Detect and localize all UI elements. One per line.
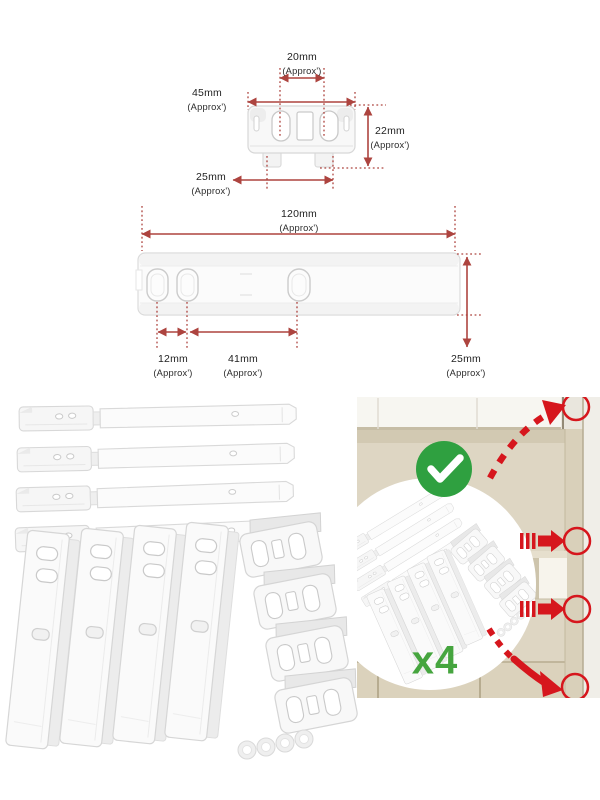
dim-label-rail-height: 25mm (Approx') bbox=[446, 353, 485, 379]
dim-label-clip-width: 45mm (Approx') bbox=[187, 87, 226, 113]
cabinet-side-edge bbox=[565, 397, 600, 698]
dim-label-clip-tab-spacing: 25mm (Approx') bbox=[191, 171, 230, 197]
dim-approx: (Approx') bbox=[153, 367, 192, 379]
dim-value: 41mm bbox=[223, 353, 262, 367]
dim-approx: (Approx') bbox=[282, 65, 321, 77]
check-icon bbox=[416, 441, 472, 497]
rail-part-drawing bbox=[136, 253, 460, 315]
dim-approx: (Approx') bbox=[223, 367, 262, 379]
clip-part-drawing bbox=[248, 106, 355, 167]
dim-value: 22mm bbox=[370, 125, 409, 139]
dim-approx: (Approx') bbox=[187, 101, 226, 113]
cabinet-recess bbox=[531, 551, 567, 599]
diagram-artwork bbox=[0, 0, 600, 800]
dim-approx: (Approx') bbox=[191, 185, 230, 197]
kit-contents-drawing bbox=[5, 403, 367, 759]
dim-label-rail-length: 120mm (Approx') bbox=[279, 208, 318, 234]
dim-label-rail-peg-gap-small: 12mm (Approx') bbox=[153, 353, 192, 379]
dim-approx: (Approx') bbox=[279, 222, 318, 234]
installation-panel-drawing bbox=[324, 394, 600, 700]
dim-label-clip-height: 22mm (Approx') bbox=[370, 125, 409, 151]
quantity-label: x4 bbox=[412, 639, 459, 684]
dim-value: 120mm bbox=[279, 208, 318, 222]
dim-approx: (Approx') bbox=[370, 139, 409, 151]
dim-value: 45mm bbox=[187, 87, 226, 101]
dim-value: 25mm bbox=[446, 353, 485, 367]
dim-label-clip-slot-spacing: 20mm (Approx') bbox=[282, 51, 321, 77]
product-image: 20mm (Approx') 45mm (Approx') 22mm (Appr… bbox=[0, 0, 600, 800]
dim-value: 20mm bbox=[282, 51, 321, 65]
dim-value: 12mm bbox=[153, 353, 192, 367]
dim-approx: (Approx') bbox=[446, 367, 485, 379]
dim-value: 25mm bbox=[191, 171, 230, 185]
dim-label-rail-peg-gap-large: 41mm (Approx') bbox=[223, 353, 262, 379]
